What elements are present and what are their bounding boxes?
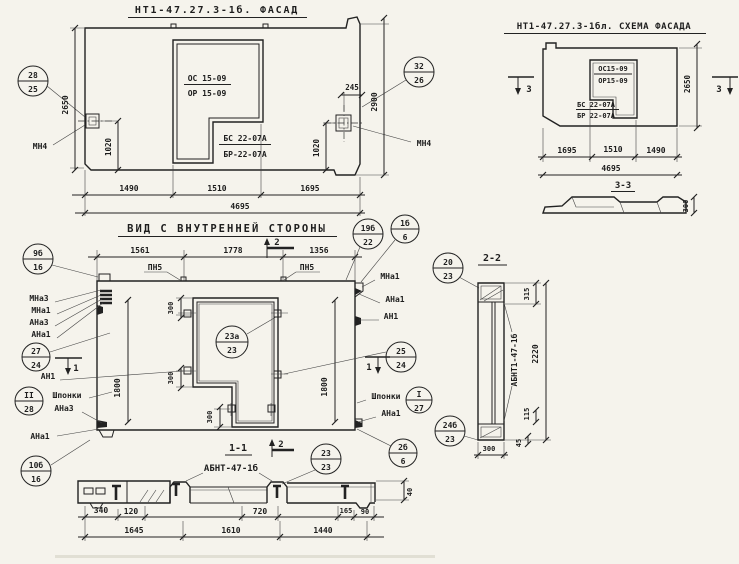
section-2-marker-bottom: 2 (269, 439, 294, 457)
scan-smudge (55, 555, 435, 558)
section-2-2-view: 2-2 20 23 24б 23 АБНТ1-47-1б 315 (433, 253, 551, 459)
profile-seat-2-anchor (273, 486, 281, 498)
section-3-3-dim-text: 300 (682, 200, 690, 213)
facade-view: НТ1-47.27.3-1б. ФАСАД ОС 15-09 ОР 15-09 … (18, 4, 434, 216)
callout-bottom: 23 (227, 346, 237, 355)
callout-leader (247, 317, 276, 334)
section-marker-arrowhead (727, 88, 733, 95)
dim-2220-text: 2220 (531, 344, 540, 363)
dim-40-text: 40 (406, 488, 414, 496)
dim-315-text: 315 (523, 288, 531, 301)
callout-bottom: 16 (31, 475, 41, 484)
dim-1645-text: 1645 (124, 526, 143, 535)
profile-left-block (78, 481, 170, 503)
profile-right-detail (287, 483, 375, 502)
callout-I-27: I 27 (406, 387, 432, 413)
label-ana1-right: АНа1 (385, 295, 404, 304)
section-2-2-bottom-hatch (480, 427, 501, 438)
section-1-1-title: 1-1 (229, 443, 247, 454)
callout-top: 24б (443, 420, 458, 430)
callout-bottom: 6 (401, 457, 406, 466)
schema-door-label-1: БС 22-07А (577, 101, 616, 109)
callout-bottom: 23 (445, 435, 455, 444)
callout-leader (459, 277, 479, 288)
inner-panel-outline (97, 281, 355, 430)
section-marker-label: 1 (366, 363, 371, 373)
dim-1020l-text: 1020 (104, 137, 113, 156)
leader-ana1-left (57, 303, 103, 338)
facade-anchor-label-right: МН4 (417, 139, 432, 148)
label-an1-left: АН1 (41, 372, 56, 381)
section-2-marker-top: 2 (264, 238, 294, 258)
section-1-1-label-leaders (186, 473, 272, 481)
dim-90-text: 90 (361, 508, 369, 516)
dim-165-text: 165 (340, 507, 353, 515)
leader-mna1-left (57, 295, 101, 314)
callout-top: I (417, 390, 422, 399)
inner-dim-300c-text: 300 (206, 411, 214, 424)
dim-245-text: 245 (345, 83, 359, 92)
section-marker-arrowhead (264, 238, 270, 245)
section-marker-arrowhead (65, 368, 71, 375)
section-3-3-title: 3-3 (615, 181, 631, 191)
callout-24b-23: 24б 23 (435, 416, 478, 446)
dim-1020r-text: 1020 (312, 138, 321, 157)
leader-mna1-right (362, 280, 375, 287)
callout-23a-23: 23а 23 (216, 317, 276, 358)
inner-dim-1800r-text: 1800 (320, 377, 329, 396)
inner-dim-300b-text: 300 (167, 372, 175, 385)
dim-1510-text: 1510 (207, 184, 226, 193)
inner-dim-1800l-text: 1800 (113, 378, 122, 397)
dim-1440-text: 1440 (313, 526, 332, 535)
label-mna1-left: МНа1 (31, 306, 50, 315)
label-shponki-left: Шпонки (53, 391, 82, 400)
schema-view: НТ1-47.27.3-1бл. СХЕМА ФАСАДА ОС15-09 ОР… (504, 21, 738, 216)
leader-ana3-left-2 (82, 412, 102, 423)
profile-mid-slab (190, 487, 267, 503)
callout-2b-6: 2б 6 (357, 429, 417, 467)
label-ana3-left: АНа3 (29, 318, 48, 327)
callout-top: 2б (398, 442, 408, 452)
callout-bottom: 25 (28, 85, 38, 94)
technical-drawing: НТ1-47.27.3-1б. ФАСАД ОС 15-09 ОР 15-09 … (0, 0, 739, 564)
callout-10b-16: 10б 16 (21, 440, 90, 486)
callout-bottom: 23 (321, 463, 331, 472)
inner-dim-300a-text: 300 (167, 302, 175, 315)
dim-1610-text: 1610 (221, 526, 240, 535)
schema-dim-1510: 1510 (603, 145, 622, 154)
pn5-leader-1 (144, 272, 180, 280)
section-3-marker-right: 3 (712, 77, 738, 95)
section-marker-label: 2 (274, 238, 279, 248)
callout-top: 19б (361, 223, 376, 233)
callout-top: 25 (396, 347, 406, 356)
inner-title: ВИД С ВНУТРЕННЕЙ СТОРОНЫ (127, 222, 327, 235)
section-1-1-view: 1-1 2 АБНТ-47-1б 23 23 (78, 439, 414, 541)
label-mna3-left: МНа3 (29, 294, 48, 303)
label-ana3-left-2: АНа3 (54, 404, 73, 413)
section-2-2-outline (478, 283, 504, 440)
facade-anchor-label-right-leader (353, 126, 411, 142)
section-marker-label: 1 (73, 364, 78, 374)
pn5-label-2: ПН5 (300, 263, 315, 272)
dim-4695-text: 4695 (230, 202, 249, 211)
callout-19b-22: 19б 22 (346, 219, 383, 280)
label-ana1-left: АНа1 (31, 330, 50, 339)
callout-bottom: 23 (443, 272, 453, 281)
callout-top: 1б (400, 218, 410, 228)
dim-1490-text: 1490 (119, 184, 138, 193)
schema-title: НТ1-47.27.3-1бл. СХЕМА ФАСАДА (517, 21, 692, 32)
label-an1-right: АН1 (384, 312, 399, 321)
dim-120-text: 120 (124, 507, 139, 516)
inner-window-fixing-axes (178, 313, 288, 416)
callout-leader (346, 247, 360, 280)
facade-door-label-1: БС 22-07А (223, 134, 267, 143)
callout-bottom: 26 (414, 76, 424, 85)
section-1-marker-left: 1 (55, 358, 82, 375)
facade-window-label-2: ОР 15-09 (188, 89, 227, 98)
callout-bottom: 28 (24, 405, 34, 414)
profile-right-anchor (341, 486, 349, 499)
inner-left-anchor-marks (100, 291, 112, 303)
section-2-2-inner-lines (478, 302, 504, 424)
drawing-sheet: НТ1-47.27.3-1б. ФАСАД ОС 15-09 ОР 15-09 … (0, 0, 739, 564)
facade-anchor-label-left-leader (53, 125, 85, 145)
profile-seat-1-anchor (172, 484, 180, 496)
dim-300s-text: 300 (483, 445, 496, 453)
schema-dim-4695: 4695 (601, 164, 620, 173)
schema-door-label-2: БР 22-07А (577, 112, 616, 120)
callout-top: 9б (33, 248, 43, 258)
callout-top: 23 (321, 449, 331, 458)
facade-anchor-label-left: МН4 (33, 142, 48, 151)
callout-bottom: 24 (396, 361, 406, 370)
facade-anchor-right-centerlines (324, 105, 363, 142)
label-ana1-bottom-left: АНа1 (30, 432, 49, 441)
section-2-2-title: 2-2 (483, 253, 501, 264)
callout-top: II (24, 391, 34, 400)
callout-bottom: 27 (414, 404, 424, 413)
callout-top: 10б (29, 460, 44, 470)
dim-45-text: 45 (515, 439, 523, 447)
section-marker-arrowhead (375, 367, 381, 374)
leader-ana1-right (359, 294, 380, 303)
schema-window-label-2: ОР15-09 (598, 77, 628, 85)
callout-II-28: II 28 (15, 387, 43, 415)
pn5-leader-2 (284, 272, 320, 280)
section-marker-label: 2 (278, 440, 283, 450)
section-1-1-label: АБНТ-47-1б (204, 463, 258, 474)
label-shponki-right: Шпонки (372, 392, 401, 401)
callout-leader (51, 440, 90, 465)
dim-2900-text: 2900 (370, 92, 379, 111)
schema-dim-2650-text: 2650 (683, 74, 692, 93)
pn5-label-1: ПН5 (148, 263, 163, 272)
callout-leader (50, 333, 110, 352)
leader-ana1-bottom-left (57, 429, 99, 436)
facade-title: НТ1-47.27.3-1б. ФАСАД (135, 4, 299, 16)
callout-top: 20 (443, 258, 453, 267)
schema-dim-1695: 1695 (557, 146, 576, 155)
callout-20-23: 20 23 (433, 253, 479, 288)
dim-1695-text: 1695 (300, 184, 319, 193)
leader-shponki-right (357, 400, 366, 403)
callout-bottom: 22 (363, 238, 373, 247)
section-marker-label: 3 (526, 85, 531, 95)
callout-top: 28 (28, 71, 38, 80)
dim-1561-text: 1561 (130, 246, 149, 255)
dim-2650-text: 2650 (61, 95, 70, 114)
leader-mna3-left (55, 290, 101, 302)
profile-left-anchor (112, 486, 121, 500)
callout-top: 23а (225, 332, 240, 341)
schema-dim-1490: 1490 (646, 146, 665, 155)
callout-25-24: 25 24 (284, 342, 416, 374)
dim-2650-ext (70, 28, 84, 168)
profile-left-hatch (140, 490, 164, 502)
leader-shponki-left (89, 392, 112, 398)
callout-top: 32 (414, 62, 424, 71)
inner-view: ВИД С ВНУТРЕННЕЙ СТОРОНЫ 1561 1778 1356 … (15, 215, 432, 486)
section-marker-label: 3 (716, 85, 721, 95)
dim-720-text: 720 (253, 507, 268, 516)
callout-leader (52, 265, 98, 277)
callout-bottom: 24 (31, 361, 41, 370)
dim-115-text: 115 (523, 408, 531, 421)
dim-1356-text: 1356 (309, 246, 328, 255)
schema-window-label-1: ОС15-09 (598, 65, 628, 73)
profile-left-hooks (84, 488, 105, 494)
label-ana1-right-2: АНа1 (381, 409, 400, 418)
callout-leader (464, 436, 478, 440)
section-3-3-profile (543, 197, 686, 213)
dim-1778-text: 1778 (223, 246, 242, 255)
section-marker-arrowhead (269, 439, 275, 446)
callout-bottom: 6 (403, 233, 408, 242)
profile-mid-slab-detail (190, 487, 267, 503)
dim-340-text: 340 (94, 506, 109, 515)
callout-leader (282, 470, 315, 484)
section-3-marker-left: 3 (508, 77, 534, 95)
callout-top: 27 (31, 347, 41, 356)
callout-9b-16: 9б 16 (23, 244, 98, 277)
section-marker-arrowhead (515, 88, 521, 95)
facade-door-label-2: БР-22-07А (223, 150, 267, 159)
facade-window-label-1: ОС 15-09 (188, 74, 227, 83)
label-mna1-right: МНа1 (380, 272, 399, 281)
callout-bottom: 16 (33, 263, 43, 272)
inner-panel-top-details (99, 274, 286, 281)
section-2-2-label: АБНТ1-47-1б (509, 333, 519, 386)
callout-leader (357, 429, 391, 446)
section-3-3-view: 3-3 300 (543, 181, 697, 216)
